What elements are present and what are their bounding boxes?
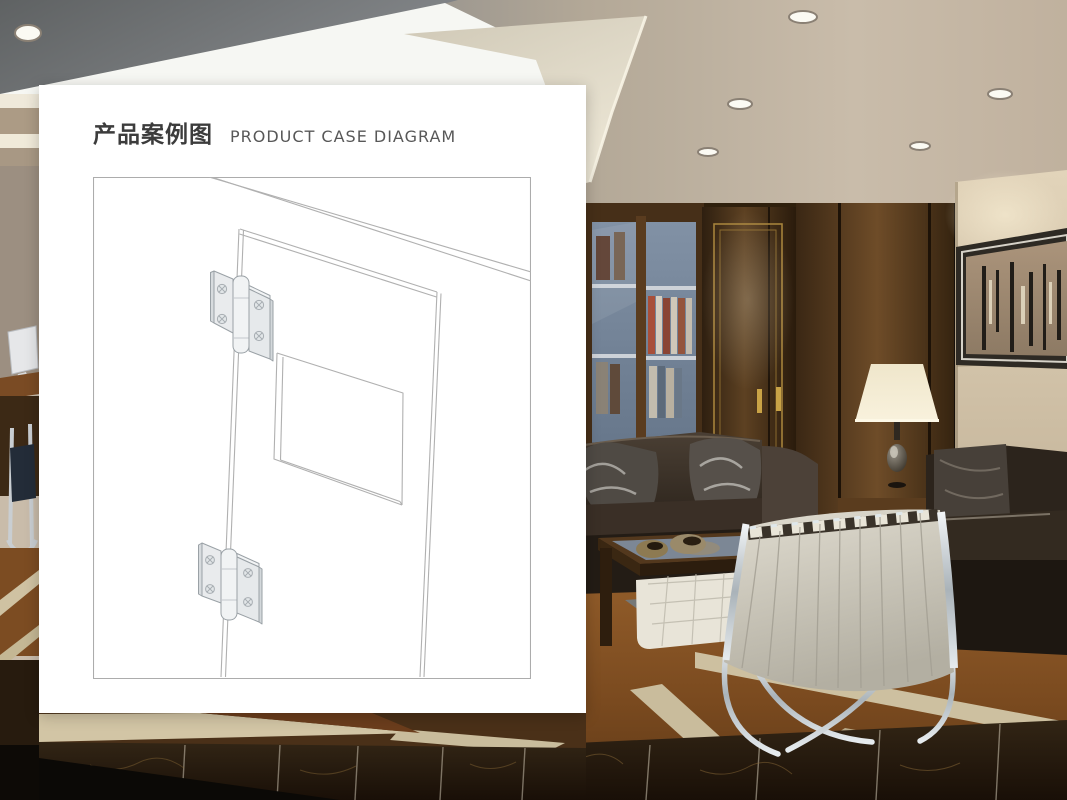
- product-case-image: 产品案例图 PRODUCT CASE DIAGRAM: [0, 0, 1067, 800]
- hinge-barrel: [233, 276, 249, 353]
- floor-under-card: [39, 713, 586, 800]
- wall-artwork: [956, 228, 1067, 369]
- card-title-zh: 产品案例图: [93, 115, 213, 149]
- hinge-leaf: [237, 557, 259, 622]
- hinge-leaf: [202, 543, 221, 603]
- window-cutout: [274, 353, 403, 505]
- card-title: 产品案例图 PRODUCT CASE DIAGRAM: [93, 115, 456, 149]
- hinge-top: [211, 271, 274, 361]
- hinge-leaf: [249, 289, 270, 359]
- product-card: 产品案例图 PRODUCT CASE DIAGRAM: [39, 85, 586, 713]
- wall-edge-lines: [209, 177, 531, 281]
- monitor: [8, 326, 38, 374]
- hinge-barrel: [221, 549, 237, 620]
- left-strip: [0, 94, 39, 800]
- door-hinge-diagram: [93, 177, 531, 679]
- card-title-en: PRODUCT CASE DIAGRAM: [230, 127, 456, 146]
- sofa-cushion: [934, 444, 1010, 520]
- hinge-bottom: [199, 543, 263, 624]
